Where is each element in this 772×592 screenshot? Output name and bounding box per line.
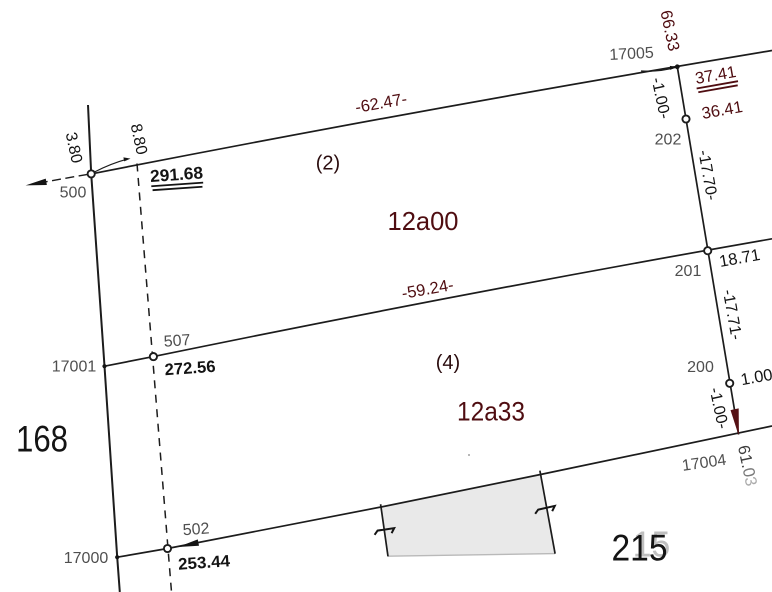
svg-text:202: 202 bbox=[655, 131, 682, 148]
svg-text:502: 502 bbox=[182, 520, 210, 539]
svg-text:253.44: 253.44 bbox=[178, 552, 232, 574]
svg-text:(2): (2) bbox=[316, 152, 340, 174]
svg-text:17005: 17005 bbox=[609, 45, 654, 64]
svg-text:17001: 17001 bbox=[52, 358, 97, 375]
svg-text:272.56: 272.56 bbox=[164, 358, 216, 380]
svg-text:168: 168 bbox=[16, 418, 68, 459]
svg-text:200: 200 bbox=[687, 359, 714, 376]
svg-text:(4): (4) bbox=[436, 352, 460, 374]
svg-text:12a00: 12a00 bbox=[388, 206, 459, 236]
svg-text:215: 215 bbox=[612, 528, 668, 569]
svg-text:201: 201 bbox=[675, 263, 702, 280]
svg-text:17000: 17000 bbox=[64, 550, 109, 567]
svg-text:507: 507 bbox=[163, 332, 191, 351]
svg-text:12a33: 12a33 bbox=[457, 397, 525, 427]
svg-text:500: 500 bbox=[60, 184, 87, 201]
